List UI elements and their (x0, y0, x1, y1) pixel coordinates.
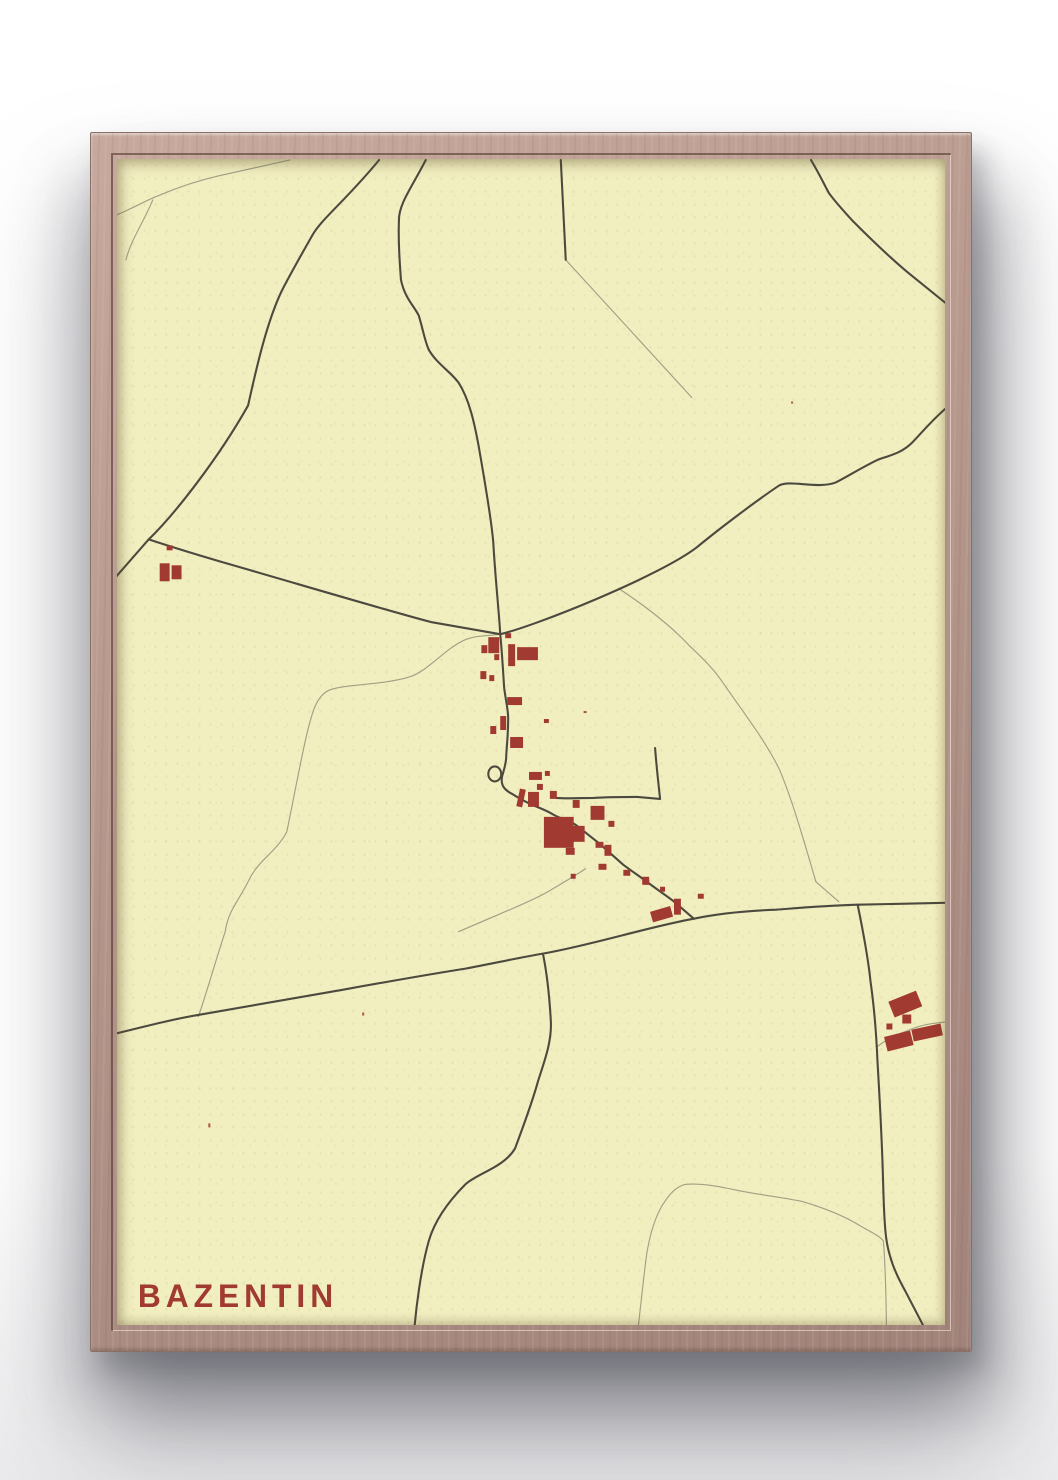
specks-group (208, 402, 793, 1128)
poster-frame: BAZENTIN (90, 132, 972, 1352)
map-paper: BAZENTIN (117, 159, 945, 1325)
buildings-group (160, 545, 943, 1051)
secondary-roads (117, 160, 945, 1325)
map-svg: BAZENTIN (117, 159, 945, 1325)
primary-roads (117, 160, 945, 1325)
poster-title: BAZENTIN (138, 1278, 338, 1314)
page-background: BAZENTIN (0, 0, 1058, 1480)
